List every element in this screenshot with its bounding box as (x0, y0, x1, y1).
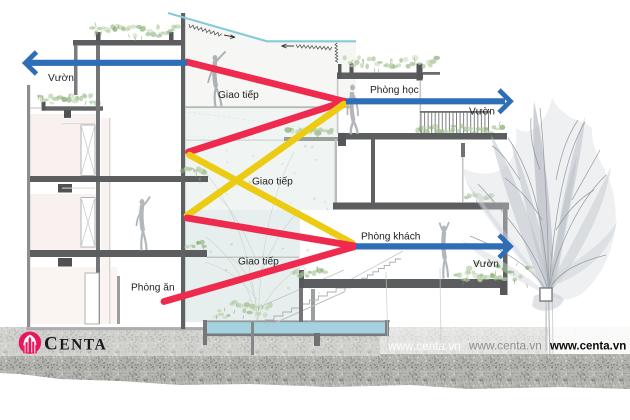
svg-text:Phòng ăn: Phòng ăn (131, 283, 175, 294)
svg-text:www.centa.vn: www.centa.vn (387, 339, 461, 353)
svg-text:www.centa.vn: www.centa.vn (549, 341, 626, 353)
svg-text:Giao tiếp: Giao tiếp (252, 176, 293, 188)
svg-text:Vườn: Vườn (469, 107, 495, 118)
svg-text:www.centa.vn: www.centa.vn (468, 339, 542, 353)
svg-text:CENTA: CENTA (44, 334, 107, 355)
svg-text:Vườn: Vườn (473, 259, 499, 270)
svg-text:Giao tiếp: Giao tiếp (218, 89, 259, 101)
svg-text:Giao tiếp: Giao tiếp (238, 256, 279, 268)
svg-text:Phòng khách: Phòng khách (361, 232, 420, 243)
svg-text:Vườn: Vườn (48, 73, 74, 84)
svg-text:Phòng học: Phòng học (370, 85, 419, 96)
